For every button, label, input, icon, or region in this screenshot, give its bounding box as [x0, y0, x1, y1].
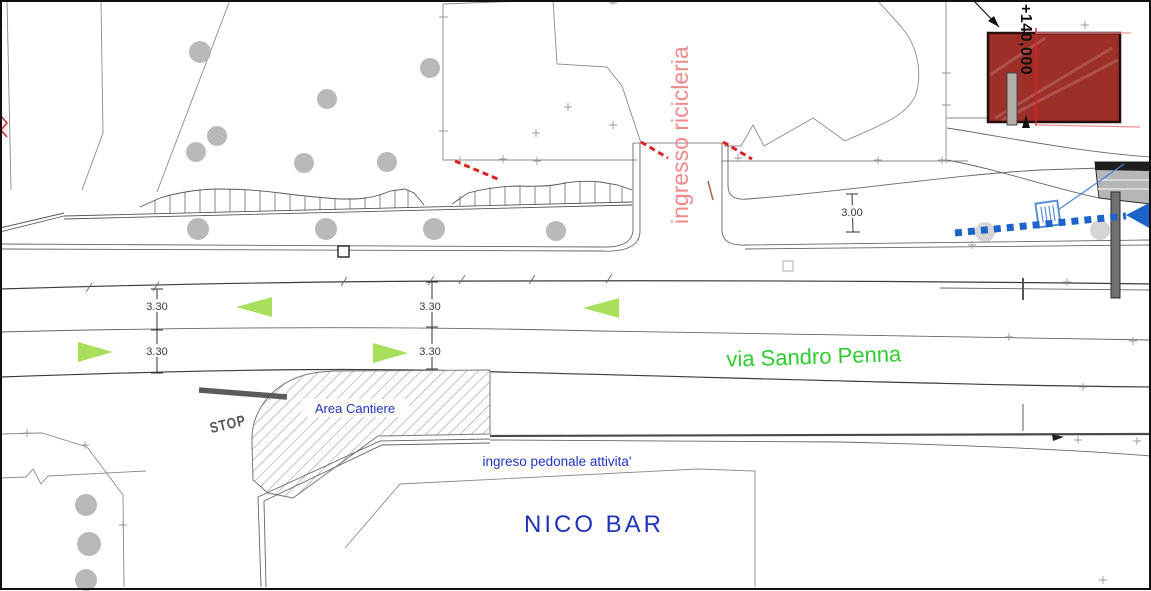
- survey-markers: [23, 0, 1141, 584]
- dim-lower-lane-mid: 3.30: [419, 346, 440, 358]
- left-arrow-icon: [583, 298, 619, 318]
- stop-marking: STOP: [208, 412, 247, 436]
- left-arrow-icon: [236, 297, 272, 317]
- guardrail-profile: [0, 181, 632, 232]
- vehicle-route-arrowhead: [1126, 202, 1151, 229]
- road-centerline: [0, 328, 1151, 340]
- tree-icon: [75, 494, 97, 516]
- recycling-entrance-label: ingresso ricicleria: [667, 46, 693, 224]
- right-arrow-icon: [373, 343, 408, 363]
- right-structures: +140,000: [947, 0, 1151, 298]
- tree-icon: [189, 41, 211, 63]
- tree-icon: [187, 218, 209, 240]
- tree-icon: [317, 89, 337, 109]
- break-line-symbol: [0, 469, 146, 484]
- tree-icon: [546, 221, 566, 241]
- utility-square-marker: [338, 246, 349, 257]
- tree-icon: [315, 218, 337, 240]
- site-plan-drawing: Area Cantiere STOP 3.30 3.30 3.30 3.30 3…: [0, 0, 1151, 591]
- pedestrian-entrance-label: ingreso pedonale attivita': [483, 454, 632, 469]
- tree-icon: [294, 153, 314, 173]
- wall-section-bar: [1111, 192, 1120, 298]
- pilaster: [1007, 73, 1017, 125]
- tree-icon: [1090, 220, 1110, 240]
- tree-icon: [377, 152, 397, 172]
- road-bottom-edge: [0, 370, 1151, 387]
- dim-upper-lane-mid: 3.30: [419, 301, 440, 313]
- entrance-red-dashes: [455, 142, 752, 200]
- edge-tick-marks: [86, 274, 612, 292]
- work-area-hatched-polygon: [252, 370, 490, 498]
- work-area-label: Area Cantiere: [315, 401, 395, 416]
- parcel-boundaries: [0, 0, 988, 587]
- street-name-label: via Sandro Penna: [726, 341, 902, 372]
- road-top-edge: [0, 281, 1151, 289]
- tree-icon: [77, 532, 101, 556]
- dim-entrance-lane: 3.00: [841, 207, 862, 219]
- tree-icon: [207, 126, 227, 146]
- text-labels: via Sandro Penna ingresso ricicleria ing…: [483, 46, 903, 538]
- drawing-frame: [1, 1, 1150, 589]
- dim-lower-lane-left: 3.30: [146, 346, 167, 358]
- tree-icon: [420, 58, 440, 78]
- fence-zigzag-line: [724, 118, 845, 146]
- work-area: Area Cantiere STOP: [199, 370, 490, 587]
- dim-upper-lane-left: 3.30: [146, 301, 167, 313]
- building-name-label: NICO BAR: [524, 511, 664, 538]
- tree-icon: [186, 142, 206, 162]
- cross-markers: [23, 0, 1141, 584]
- trees: [75, 41, 1110, 591]
- lower-left-parcel: [0, 433, 124, 587]
- tree-icon: [423, 218, 445, 240]
- elevation-label: +140,000: [1017, 4, 1034, 75]
- utility-square-marker: [783, 261, 793, 271]
- curved-boundary: [845, 0, 919, 141]
- right-arrow-icon: [78, 342, 113, 362]
- tree-icon: [75, 569, 97, 591]
